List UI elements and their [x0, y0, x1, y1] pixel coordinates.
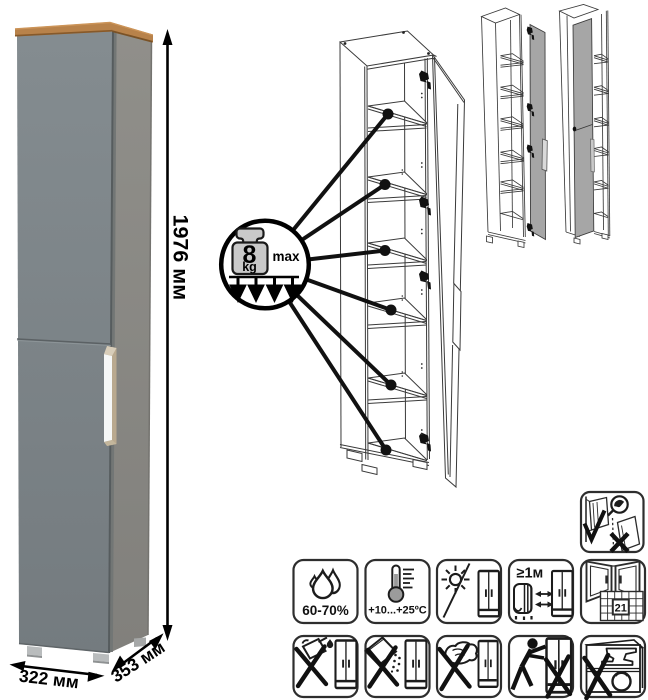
svg-text:60-70%: 60-70% — [302, 603, 349, 618]
svg-text:≥1м: ≥1м — [517, 566, 544, 582]
svg-text:21: 21 — [615, 603, 627, 615]
svg-text:+10...+25ºC: +10...+25ºC — [368, 605, 427, 617]
svg-text:322 мм: 322 мм — [18, 666, 80, 693]
svg-text:kg: kg — [242, 260, 257, 274]
svg-text:max: max — [273, 249, 301, 264]
svg-text:1976 мм: 1976 мм — [169, 215, 193, 301]
